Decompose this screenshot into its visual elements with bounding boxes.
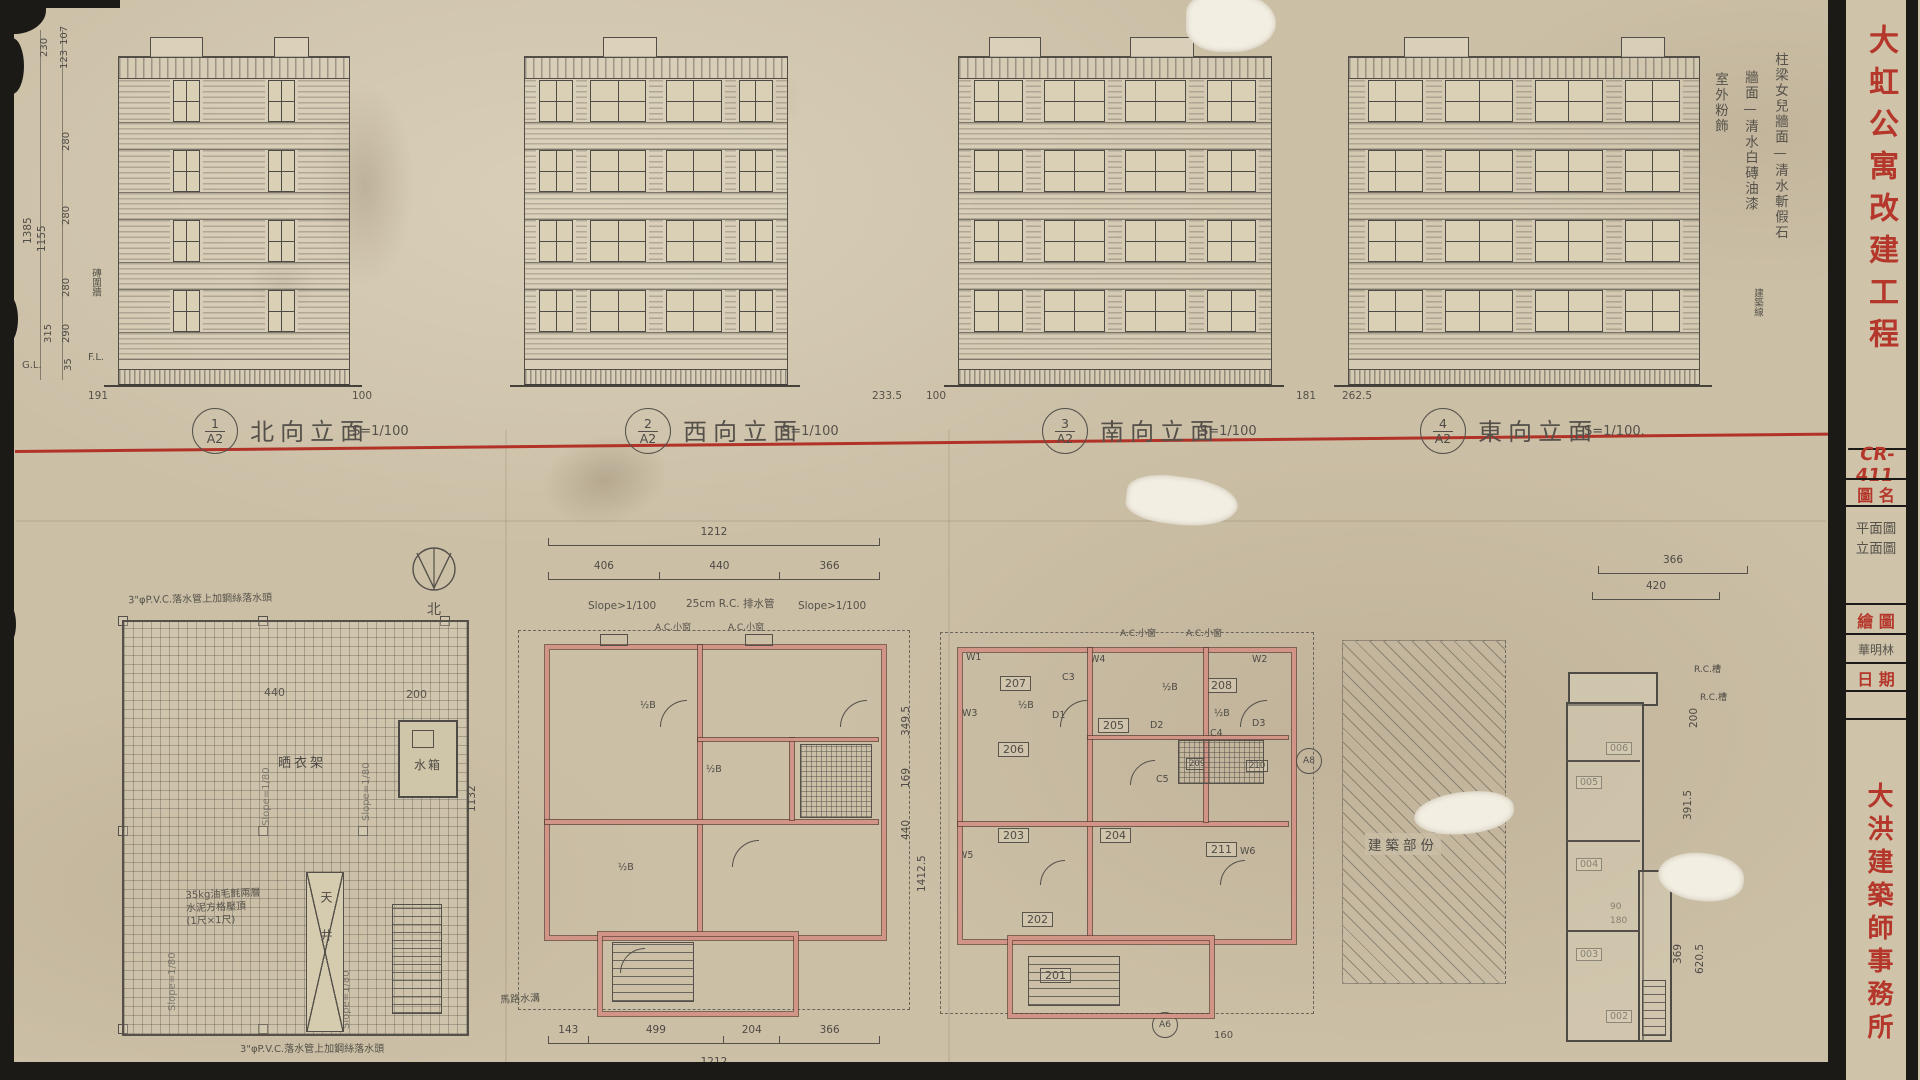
plan3f-wall (698, 738, 878, 741)
window (173, 220, 200, 262)
wall-stripe (576, 150, 587, 192)
roof-pvc-note-bottom: 3"φP.V.C.落水管上加鋼絲落水頭 (240, 1040, 384, 1055)
window (539, 290, 573, 332)
drawing-name-elevation: 立面圖 (1856, 537, 1897, 557)
plan2f-stair (1028, 956, 1120, 1006)
wall-stripe (1516, 150, 1532, 192)
window-band (1349, 290, 1699, 332)
wall-stripe (1259, 80, 1271, 122)
elevation-base-dim: 262.5 (1342, 390, 1372, 402)
wall-stripe (119, 220, 170, 262)
title-block-left-bar (1828, 0, 1846, 1080)
parapet-band (959, 56, 1271, 79)
spandrel-band (1349, 192, 1699, 220)
finish-note-wall: 牆面—清水白磚油漆 (1740, 70, 1760, 310)
window-band (525, 150, 787, 192)
dimension-segment: 204 (723, 1036, 779, 1044)
rc-gutter-note: R.C.槽 (1694, 662, 1721, 675)
plan2f-outer-wall (958, 648, 1296, 944)
wall-stripe (298, 290, 349, 332)
window (173, 80, 200, 122)
dimension-row-total: 1212 (548, 528, 880, 546)
dimension-value: 204 (724, 1024, 779, 1036)
window (173, 150, 200, 192)
wall-stripe (298, 80, 349, 122)
window (1125, 220, 1186, 262)
scan-edge-bottom (0, 1062, 1832, 1080)
wall-stripe (298, 150, 349, 192)
wall-stripe (1426, 290, 1442, 332)
tank-inner (412, 730, 434, 748)
spandrel-band (1349, 332, 1699, 360)
window-band (525, 220, 787, 262)
wall-stripe (959, 290, 971, 332)
window (1207, 150, 1256, 192)
project-title: 大虹公寓改建工程 (1858, 24, 1902, 444)
ground-floor-band (525, 369, 787, 386)
window-band (959, 80, 1271, 122)
roof-drying-label: 晒衣架 (274, 752, 330, 771)
window (1445, 150, 1513, 192)
window (268, 220, 295, 262)
window (1207, 80, 1256, 122)
spandrel-band (959, 192, 1271, 220)
elevation-scale: S=1/100 (782, 424, 839, 439)
window-band (1349, 80, 1699, 122)
wall-stripe (203, 220, 265, 262)
left-dim-line (40, 30, 41, 380)
left-dim-total: 1385 (22, 217, 34, 244)
roof-pvc-note-top: 3"φP.V.C.落水管上加鋼絲落水頭 (128, 589, 272, 607)
window (1535, 290, 1603, 332)
window (666, 150, 722, 192)
rooftop-structure (1130, 37, 1194, 58)
elevation-base-dim: 100 (926, 390, 946, 402)
window (1535, 220, 1603, 262)
wall-stripe (725, 150, 736, 192)
construction-portion-label: 建築部份 (1365, 833, 1441, 855)
elevation-base-dim: 100 (352, 390, 372, 402)
left-dim-total: 1155 (36, 225, 48, 252)
dimension-row: 406440366 (548, 562, 880, 580)
wall-stripe (119, 150, 170, 192)
wall-stripe (1516, 220, 1532, 262)
parapet-band (525, 56, 787, 79)
plan3f-wall (698, 645, 702, 932)
wall-stripe (1026, 220, 1041, 262)
wall-stripe (649, 220, 663, 262)
wall-stripe (1426, 80, 1442, 122)
window (1445, 290, 1513, 332)
wall-stripe (1606, 220, 1622, 262)
elevation-1-drawing (118, 56, 350, 386)
window (1445, 220, 1513, 262)
window (1368, 150, 1423, 192)
wall-stripe (1606, 150, 1622, 192)
spandrel-band (119, 122, 349, 150)
wall-stripe (525, 150, 536, 192)
wall-stripe (1108, 220, 1123, 262)
partial-right-dim: 620.5 (1694, 944, 1706, 974)
partial-plan-partition (1566, 930, 1640, 932)
window-band (959, 290, 1271, 332)
elevation-number: 4 (1433, 417, 1453, 432)
rooftop-structure (603, 37, 657, 58)
wall-stripe (1026, 150, 1041, 192)
dimension-value: 366 (1599, 554, 1747, 566)
window (1044, 290, 1105, 332)
window (974, 80, 1023, 122)
window (1625, 220, 1680, 262)
wall-stripe (1606, 80, 1622, 122)
drawn-by-field-label: 繪 圖 (1846, 603, 1906, 635)
elevation-2-drawing (524, 56, 788, 386)
water-tank-room: 水箱 (398, 720, 458, 798)
window (1445, 80, 1513, 122)
plan2f-wall (1088, 736, 1288, 739)
scan-edge-left (0, 0, 14, 1080)
rc-gutter-note: R.C.槽 (1700, 690, 1727, 703)
dimension-segment: 406 (548, 572, 659, 580)
dimension-value: 406 (549, 560, 659, 572)
window-band (959, 220, 1271, 262)
drawing-name-values: 平面圖 立面圖 (1846, 505, 1906, 615)
wall-stripe (776, 80, 787, 122)
wall-stripe (1349, 150, 1365, 192)
building-line-note: 建築線 (1750, 288, 1764, 348)
north-arrow: 北 (408, 545, 460, 615)
window (539, 150, 573, 192)
lightwell-shaft: 天井 (306, 872, 344, 1032)
dimension-value: 420 (1593, 580, 1719, 592)
scan-edge-blob (0, 296, 18, 342)
dimension-segment: 420 (1592, 592, 1720, 600)
wall-stripe (649, 80, 663, 122)
spandrel-band (959, 262, 1271, 290)
drawing-name-field-label: 圖 名 (1846, 478, 1906, 507)
window-band (119, 80, 349, 122)
elevation-4-drawing (1348, 56, 1700, 386)
wall-stripe (525, 80, 536, 122)
dimension-segment: 366 (779, 572, 880, 580)
window (268, 290, 295, 332)
window (1044, 220, 1105, 262)
wall-stripe (776, 150, 787, 192)
scan-edge-blob (0, 38, 24, 94)
drawing-sheet: 1A2北向立面S=1/1001911002A2西向立面S=1/1003A2南向立… (0, 0, 1920, 1080)
wall-stripe (959, 220, 971, 262)
scan-edge-blob (0, 604, 16, 644)
spandrel-band (1349, 262, 1699, 290)
plan2f-bottom-dim: 160 (1214, 1030, 1233, 1041)
wall-stripe (1349, 80, 1365, 122)
window (590, 80, 646, 122)
window (974, 220, 1023, 262)
lightwell-label: 天井 (318, 891, 335, 1017)
wall-stripe (1683, 290, 1699, 332)
wall-stripe (959, 80, 971, 122)
dimension-value: 366 (780, 560, 879, 572)
wall-stripe (725, 220, 736, 262)
plan3f-wall (790, 738, 794, 820)
plan3f-ac-note: A.C.小窗 (728, 620, 764, 633)
ground-floor-band (959, 369, 1271, 386)
wall-stripe (776, 220, 787, 262)
window (1125, 80, 1186, 122)
ground-line (510, 385, 800, 387)
dimension-row-total: 366 (1598, 556, 1748, 574)
window (666, 290, 722, 332)
plan3f-bathroom (800, 744, 872, 818)
wall-stripe (1516, 80, 1532, 122)
window (739, 290, 773, 332)
wall-stripe (298, 220, 349, 262)
date-field-label: 日 期 (1846, 662, 1906, 692)
window (1625, 80, 1680, 122)
wall-stripe (119, 290, 170, 332)
office-name: 大洪建築師事務所 (1860, 782, 1897, 1068)
dimension-segment: 1212 (548, 538, 880, 546)
wall-stripe (576, 220, 587, 262)
dimension-segment: 440 (659, 572, 779, 580)
wall-stripe (1426, 150, 1442, 192)
window (666, 80, 722, 122)
spandrel-band (119, 192, 349, 220)
window (666, 220, 722, 262)
window (590, 220, 646, 262)
ground-floor-band (1349, 369, 1699, 386)
ground-line (944, 385, 1284, 387)
partial-right-dim: 391.5 (1682, 790, 1694, 820)
elevation-base-dim: 233.5 (872, 390, 902, 402)
wall-stripe (1189, 80, 1204, 122)
window (590, 150, 646, 192)
plan2f-wall (958, 822, 1288, 826)
wall-stripe (1108, 80, 1123, 122)
window (739, 150, 773, 192)
ground-line (104, 385, 362, 387)
elevation-label-circle: 3A2 (1042, 408, 1088, 454)
dimension-segment: 499 (588, 1036, 724, 1044)
ground-level-label: G.L. (22, 360, 42, 371)
wall-stripe (203, 290, 265, 332)
dimension-value: 440 (660, 560, 779, 572)
window (1207, 290, 1256, 332)
elevation-base-dim: 191 (88, 390, 108, 402)
ground-line (1334, 385, 1712, 387)
window-band (1349, 220, 1699, 262)
dimension-value: 499 (589, 1024, 724, 1036)
half-b-mark: ½B (706, 764, 722, 775)
spandrel-band (525, 192, 787, 220)
wall-stripe (1026, 80, 1041, 122)
title-block-right-bar (1906, 0, 1918, 1080)
window (974, 150, 1023, 192)
window-band (959, 150, 1271, 192)
window (173, 290, 200, 332)
wall-stripe (1349, 220, 1365, 262)
window (1625, 150, 1680, 192)
elevation-scale: S=1/100. (1584, 424, 1645, 439)
drawing-name-plan: 平面圖 (1856, 517, 1897, 537)
window (1125, 150, 1186, 192)
elevation-sheet-ref: A2 (207, 432, 224, 446)
left-dim-segment: 123 (59, 50, 70, 69)
window (1125, 290, 1186, 332)
left-dim-segment: 315 (43, 324, 54, 343)
wall-stripe (649, 290, 663, 332)
dimension-segment: 366 (779, 1036, 880, 1044)
elevation-label-circle: 4A2 (1420, 408, 1466, 454)
partial-plan-partition (1566, 840, 1640, 842)
wall-stripe (1189, 150, 1204, 192)
wall-stripe (576, 290, 587, 332)
spandrel-band (959, 332, 1271, 360)
elevation-base-dim: 181 (1296, 390, 1316, 402)
roof-dim-440: 440 (264, 686, 285, 699)
wall-stripe (1259, 220, 1271, 262)
dimension-value: 366 (780, 1024, 879, 1036)
window (739, 220, 773, 262)
wall-stripe (1189, 220, 1204, 262)
elevation-scale: S=1/100 (1200, 424, 1257, 439)
roof-stair (392, 904, 442, 1014)
wall-stripe (1259, 290, 1271, 332)
plan2f-bathroom (1178, 740, 1264, 784)
roof-dim-right: 1132 (466, 785, 478, 812)
elevation-number: 3 (1055, 417, 1075, 432)
elevation-sheet-ref: A2 (640, 432, 657, 446)
dimension-value: 1212 (549, 526, 879, 538)
plan3f-ac-box (600, 634, 628, 646)
elevation-sheet-ref: A2 (1435, 432, 1452, 446)
roof-plan: 晒衣架 水箱 天井 35kg油毛氈兩層 水泥方格壓頂 (1尺×1尺) 440 2… (122, 620, 469, 1036)
drawn-by-signature: 華明林 (1846, 633, 1906, 664)
wall-stripe (203, 150, 265, 192)
window (1535, 80, 1603, 122)
wall-stripe (1108, 150, 1123, 192)
wall-stripe (725, 80, 736, 122)
roof-dim-200: 200 (406, 688, 427, 701)
wall-stripe (959, 150, 971, 192)
wall-stripe (725, 290, 736, 332)
window (1368, 220, 1423, 262)
spandrel-band (119, 332, 349, 360)
rooftop-structure (150, 37, 203, 58)
finish-note-structure: 柱梁女兒牆面—清水斬假石 (1770, 52, 1790, 322)
window (1368, 290, 1423, 332)
left-dim-line (62, 30, 63, 380)
wall-stripe (1426, 220, 1442, 262)
dimension-segment: 366 (1598, 566, 1748, 574)
plan3f-wall (545, 820, 878, 824)
elevation-3-drawing (958, 56, 1272, 386)
brick-wall-note: 磚圍牆 (88, 268, 102, 338)
window (739, 80, 773, 122)
wall-stripe (203, 80, 265, 122)
ground-floor-band (119, 369, 349, 386)
window (539, 220, 573, 262)
window (268, 150, 295, 192)
wall-stripe (1108, 290, 1123, 332)
wall-stripe (576, 80, 587, 122)
plan3f-gutter-note: 馬路水溝 (500, 989, 541, 1006)
parapet-band (1349, 56, 1699, 79)
scan-edge-top (0, 0, 120, 8)
plan2f-wall (1088, 648, 1092, 936)
rooftop-structure (1621, 37, 1665, 58)
wall-stripe (1026, 290, 1041, 332)
window (1368, 80, 1423, 122)
floor-level-label: F.L. (88, 352, 104, 363)
window (1625, 290, 1680, 332)
window (590, 290, 646, 332)
dimension-row: 143499204366 (548, 1026, 880, 1044)
wall-stripe (1349, 290, 1365, 332)
elevation-label-circle: 2A2 (625, 408, 671, 454)
wall-stripe (525, 220, 536, 262)
rooftop-structure (989, 37, 1041, 58)
parapet-band (119, 56, 349, 79)
plan3f-drain-note: 25cm R.C. 排水管 (686, 596, 774, 611)
dimension-value: 143 (549, 1024, 588, 1036)
spandrel-band (119, 262, 349, 290)
window (1207, 220, 1256, 262)
elevation-sheet-ref: A2 (1057, 432, 1074, 446)
water-tank-label: 水箱 (400, 756, 456, 773)
wall-stripe (1516, 290, 1532, 332)
window-band (525, 80, 787, 122)
drawing-number: CR-411 (1844, 448, 1908, 480)
plan3f-slope-left: Slope>1/100 (588, 600, 656, 612)
elevation-name: 東向立面 (1478, 412, 1598, 448)
wall-stripe (1259, 150, 1271, 192)
left-dim-segment: 107 (59, 26, 70, 45)
window (1535, 150, 1603, 192)
spandrel-band (525, 332, 787, 360)
office-cell-divider (1846, 718, 1906, 720)
partial-plan-partition (1566, 760, 1640, 762)
window-band (1349, 150, 1699, 192)
window (1044, 80, 1105, 122)
date-value-cell (1846, 690, 1906, 720)
wall-stripe (1683, 80, 1699, 122)
north-label: 北 (408, 599, 460, 619)
wall-stripe (1683, 150, 1699, 192)
wall-stripe (1606, 290, 1622, 332)
wall-stripe (119, 80, 170, 122)
wall-stripe (1683, 220, 1699, 262)
spandrel-band (959, 122, 1271, 150)
dimension-segment: 143 (548, 1036, 588, 1044)
wall-stripe (649, 150, 663, 192)
window-band (119, 150, 349, 192)
wall-stripe (1189, 290, 1204, 332)
partial-right-dim: 369 (1672, 944, 1684, 964)
dimension-row-total: 420 (1592, 582, 1720, 600)
plan2f-wall (1204, 648, 1208, 822)
plan3f-ac-box (745, 634, 773, 646)
elevation-scale: S=1/100 (352, 424, 409, 439)
plan3f-slope-right: Slope>1/100 (798, 600, 866, 612)
partial-right-dim: 200 (1688, 708, 1700, 728)
plan3f-right-dim: 1412.5 (916, 855, 928, 892)
spandrel-band (525, 262, 787, 290)
half-b-mark: ½B (640, 700, 656, 711)
left-dim-segment: 35 (63, 358, 74, 371)
spandrel-band (1349, 122, 1699, 150)
finish-note-exterior: 室外粉飾 (1710, 72, 1730, 202)
